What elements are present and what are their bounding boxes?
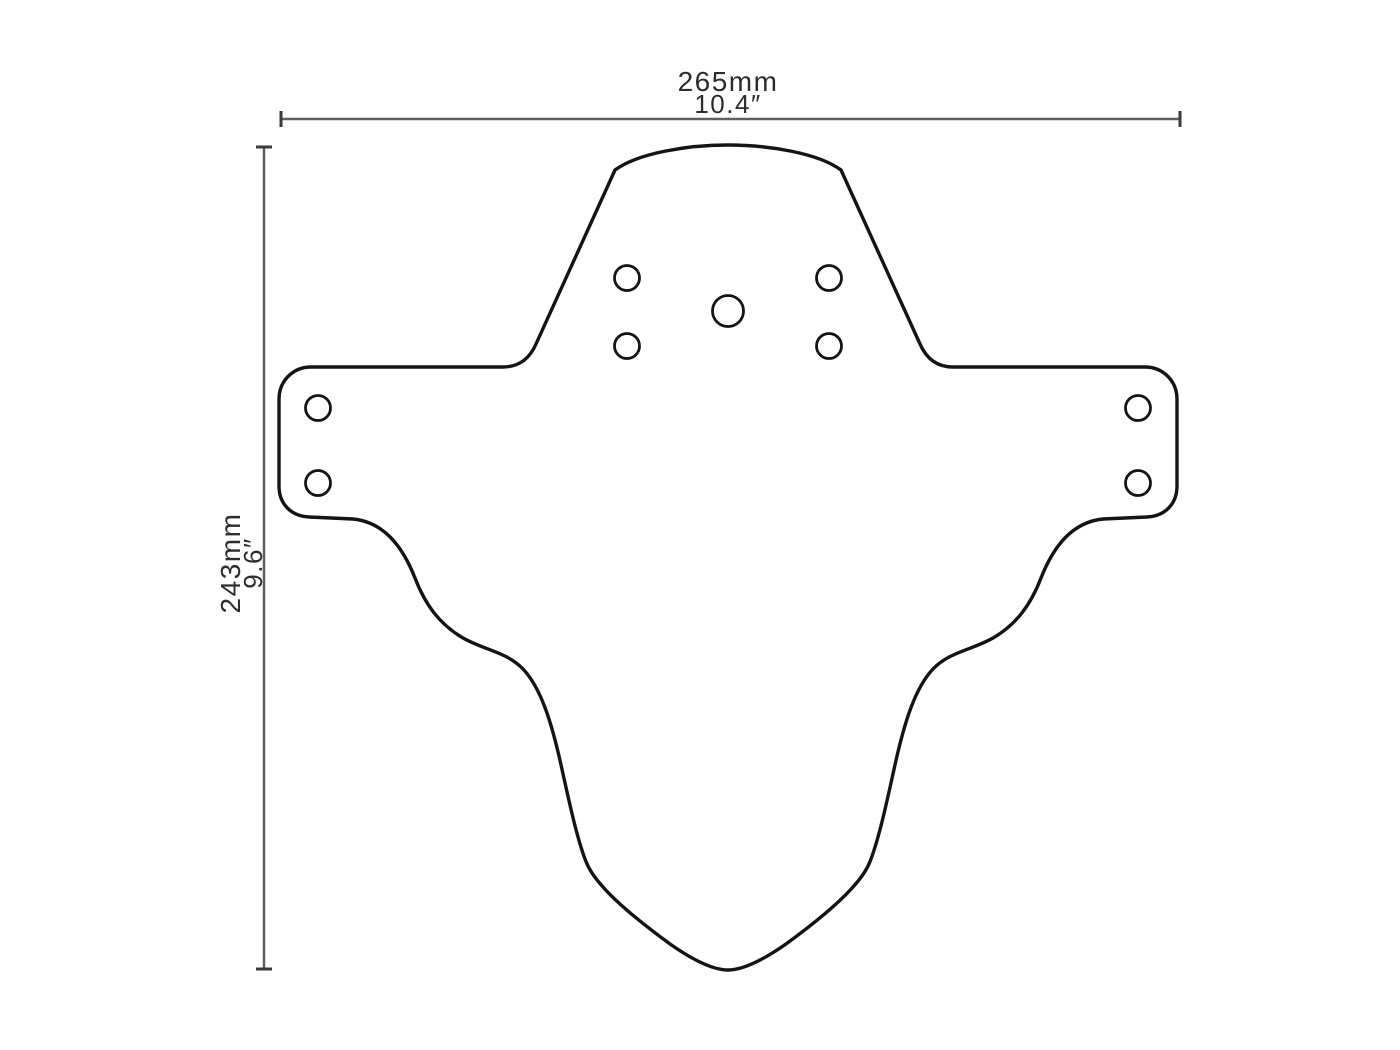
center-cluster-top-right-hole	[817, 266, 842, 291]
center-cluster-top-left-hole	[615, 266, 640, 291]
technical-drawing-page: { "dimensions": { "width": { "mm": "265m…	[0, 0, 1400, 1050]
center-cluster-bottom-right-hole	[817, 334, 842, 359]
right-wing-bottom-hole	[1126, 471, 1151, 496]
mudguard-technical-drawing	[0, 0, 1400, 1050]
height-dimension-line	[256, 147, 272, 969]
center-cluster-bottom-left-hole	[615, 334, 640, 359]
left-wing-bottom-hole	[306, 471, 331, 496]
mudguard-outline	[279, 145, 1177, 970]
center-main-hole	[713, 296, 744, 327]
right-wing-top-hole	[1126, 396, 1151, 421]
left-wing-top-hole	[306, 396, 331, 421]
width-dimension-line	[281, 111, 1180, 127]
